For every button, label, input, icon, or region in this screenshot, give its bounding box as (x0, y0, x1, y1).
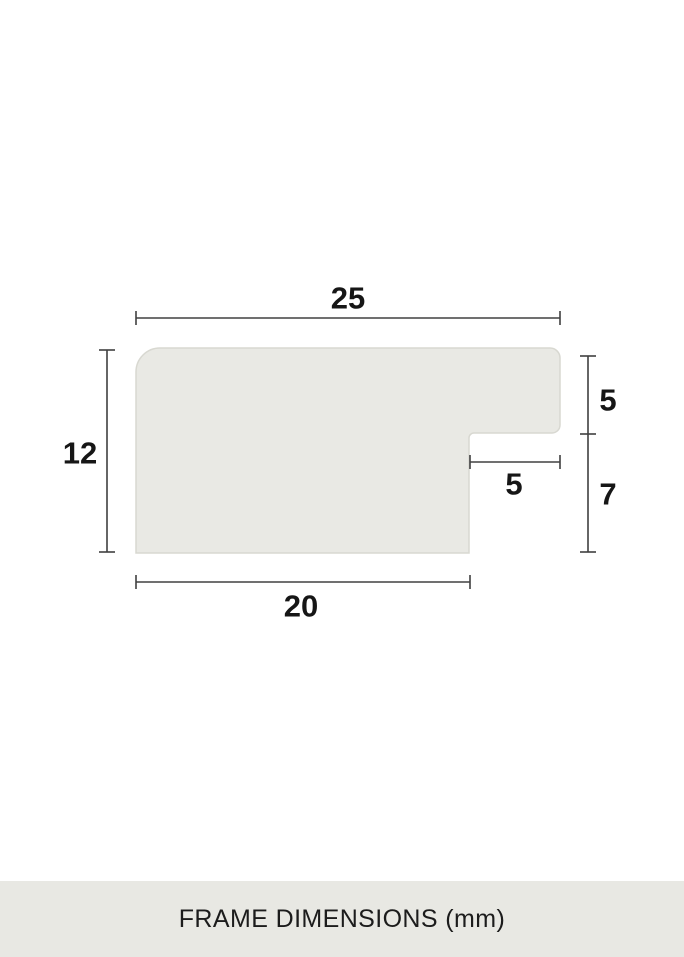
dim-right-heights (580, 356, 596, 552)
dim-label-top-width: 25 (331, 283, 365, 314)
page: 25 12 5 5 7 20 FRAME DIMENSIONS (mm) (0, 0, 684, 957)
dim-label-left-height: 12 (63, 438, 97, 469)
dim-label-rabbet-width: 5 (505, 469, 522, 500)
dim-left-height (99, 350, 115, 552)
frame-profile-diagram: 25 12 5 5 7 20 (0, 0, 684, 957)
footer-title: FRAME DIMENSIONS (mm) (179, 905, 505, 934)
dim-label-bottom-width: 20 (284, 591, 318, 622)
diagram-canvas (0, 0, 684, 700)
dim-label-right-upper-height: 5 (599, 385, 616, 416)
dim-label-right-lower-height: 7 (599, 479, 616, 510)
frame-profile-shape (136, 348, 560, 553)
dim-bottom-width (136, 575, 470, 589)
footer-bar: FRAME DIMENSIONS (mm) (0, 881, 684, 957)
